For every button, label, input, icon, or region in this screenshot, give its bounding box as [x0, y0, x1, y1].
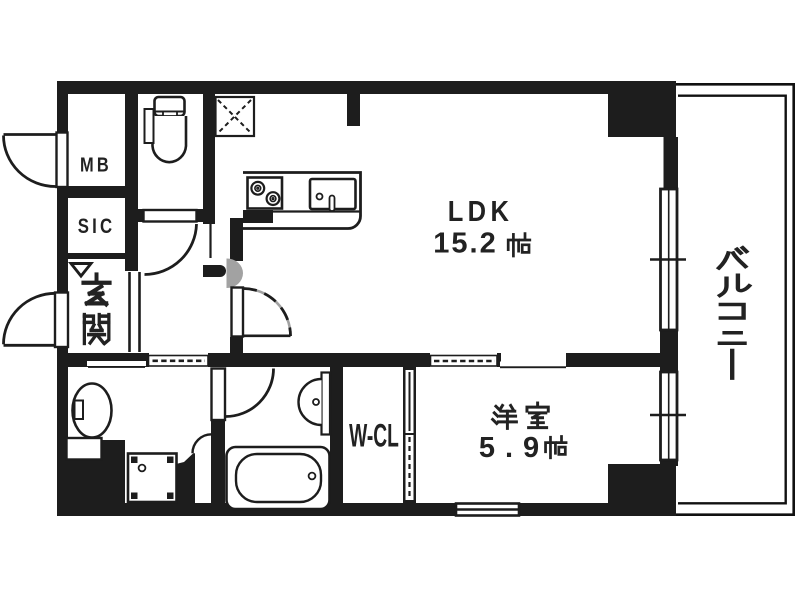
svg-text:LDK: LDK	[448, 194, 514, 227]
svg-text:15.2: 15.2	[433, 228, 497, 260]
svg-text:MB: MB	[80, 153, 112, 176]
svg-text:W-CL: W-CL	[349, 417, 399, 453]
svg-text:5.9: 5.9	[479, 432, 549, 464]
svg-text:SIC: SIC	[78, 215, 116, 238]
